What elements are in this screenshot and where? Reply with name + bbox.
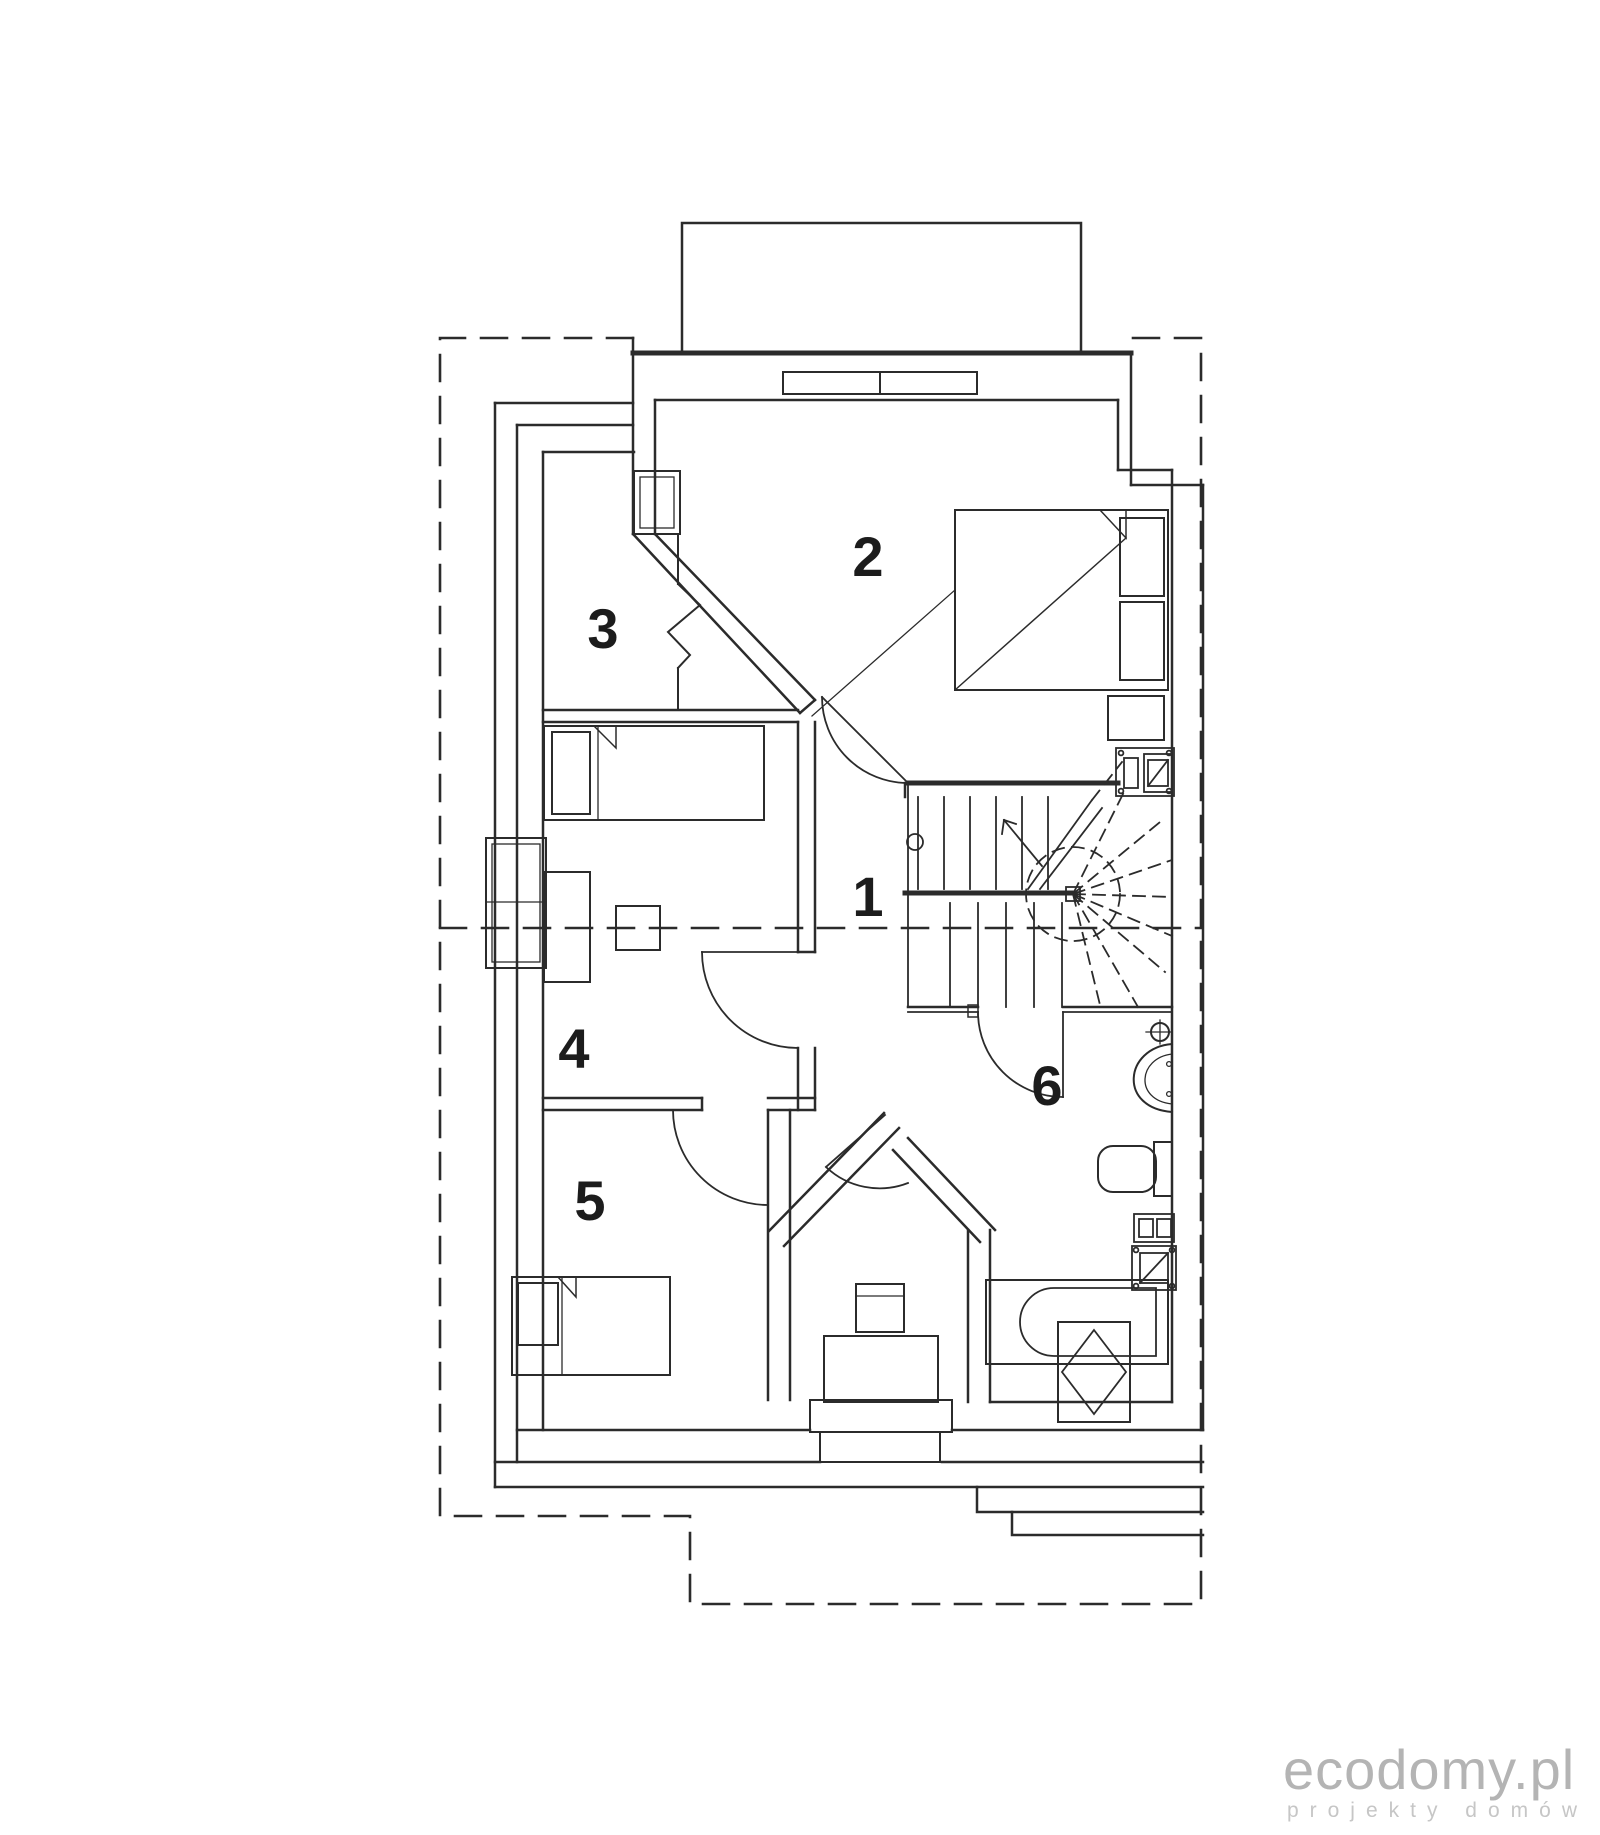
bath-window-diamond [1058,1322,1130,1422]
toilet-icon [1098,1142,1172,1196]
room-label-4: 4 [558,1017,589,1080]
floor-plan-drawing: 1 2 3 4 5 6 [0,0,1600,1835]
floor-plan-page: 1 2 3 4 5 6 ecodomy.pl projekty domów [0,0,1600,1835]
bed-room4 [544,726,764,820]
staircase [905,762,1172,1017]
doors [673,697,1063,1205]
room-labels: 1 2 3 4 5 6 [558,525,1062,1232]
room-label-1: 1 [852,865,883,928]
dormer-outline [682,223,1081,353]
door-room2 [822,697,908,783]
interior-walls [543,534,995,1402]
bed-room5 [512,1277,670,1375]
roof-outline-dashed [440,338,1201,1604]
window-bay-bottom [810,1400,952,1462]
vent-shaft-lower-icon [1132,1214,1176,1290]
cabinet-wardrobe [824,1336,938,1402]
handrail-end-symbol [907,834,923,850]
double-bed [955,510,1168,740]
room-label-6: 6 [1031,1054,1062,1117]
top-window [783,372,977,394]
door-room5 [673,1110,768,1205]
logo-brand-text: ecodomy.pl [1283,1742,1588,1798]
logo: ecodomy.pl projekty domów [1283,1742,1588,1821]
room-label-5: 5 [574,1169,605,1232]
nightstand [1108,696,1164,740]
logo-tagline-text: projekty domów [1287,1800,1588,1821]
room-label-2: 2 [852,525,883,588]
bathroom-fixtures [986,748,1176,1422]
vent-shaft-upper-icon [1116,748,1174,796]
room-label-3: 3 [587,597,618,660]
closet-room3 [634,471,680,534]
stool-wardrobe [856,1284,904,1332]
washbasin-icon [1134,1020,1172,1112]
door-room4 [702,952,798,1048]
